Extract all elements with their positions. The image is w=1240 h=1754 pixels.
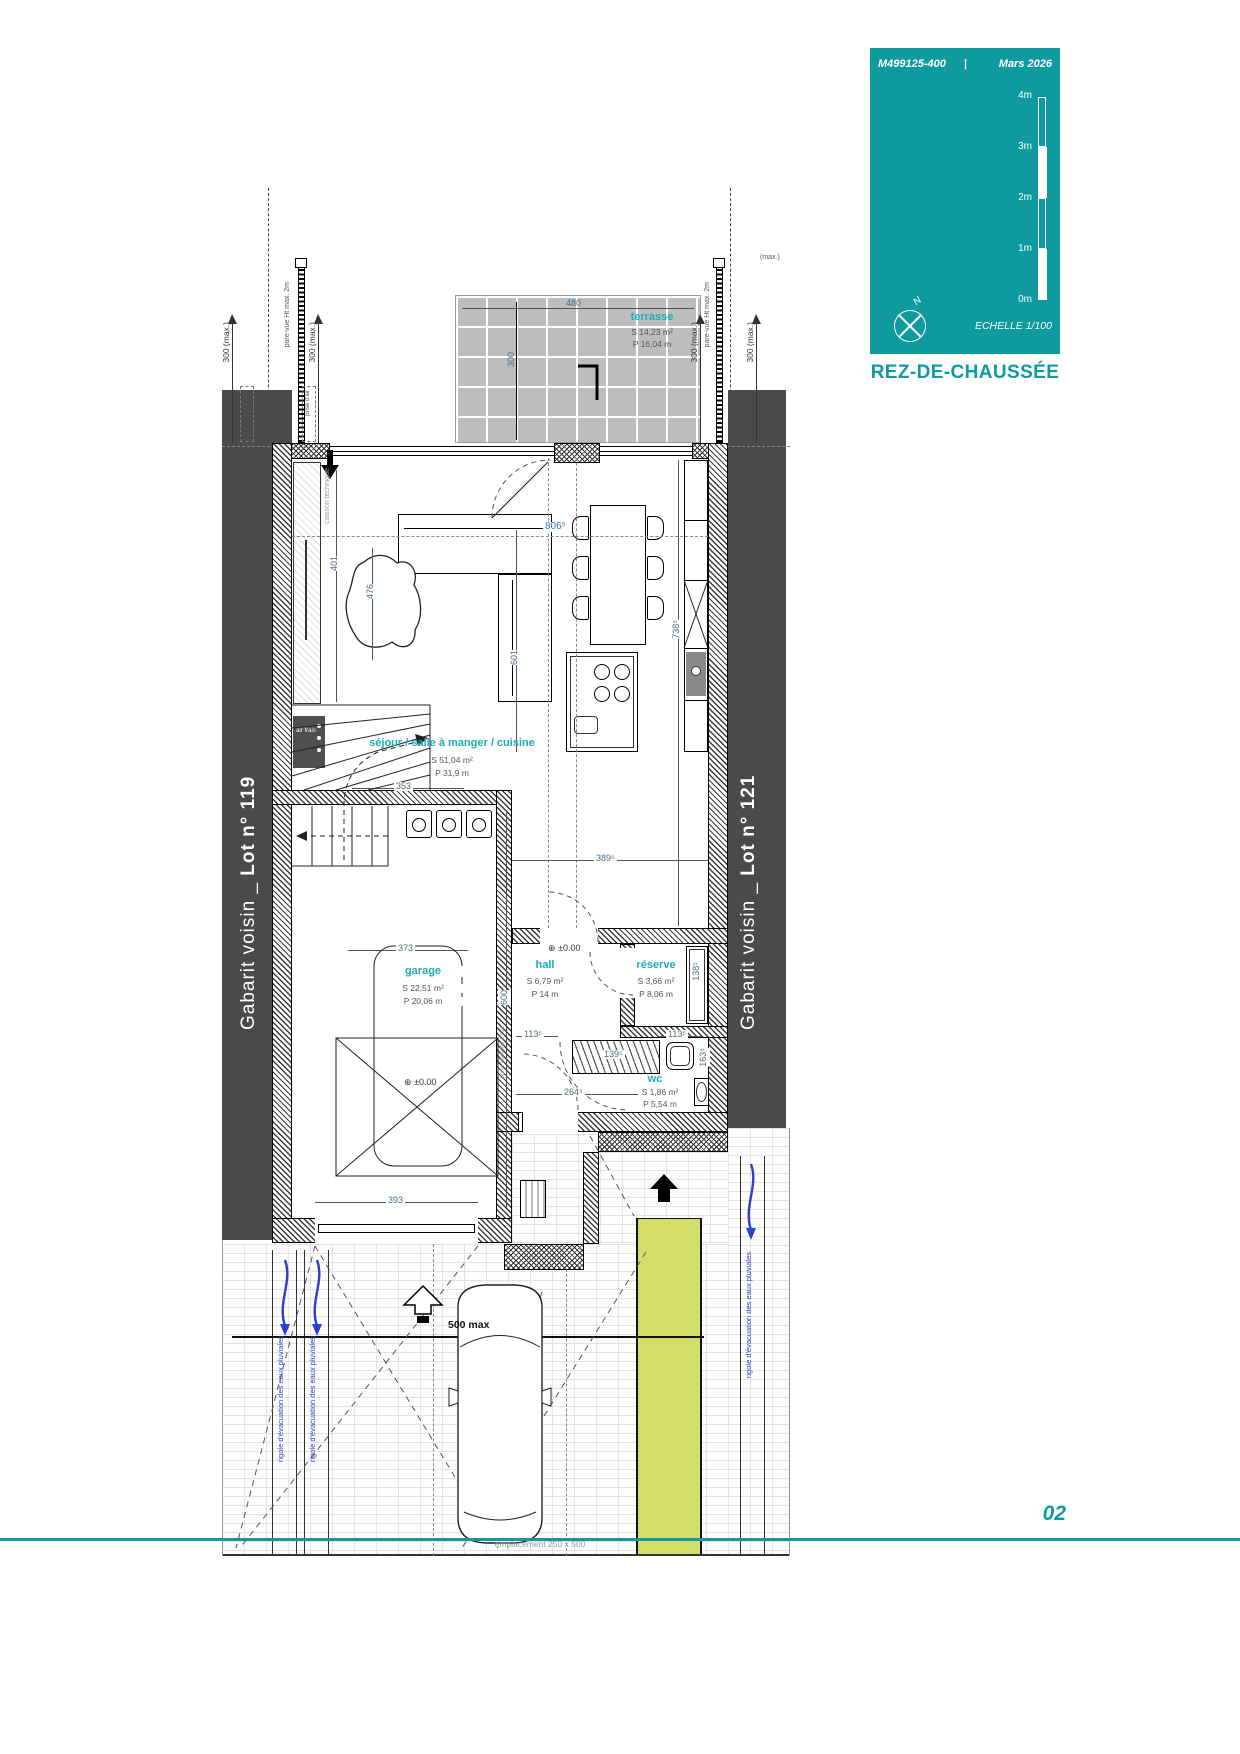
dim-label-601: 601	[508, 650, 521, 665]
room-label-reserve: réserve	[626, 960, 686, 971]
dim-label-1385: 138⁵	[690, 962, 703, 981]
room-perim-terrasse: P 16,04 m	[612, 340, 692, 349]
dim-label-600: 600	[498, 990, 511, 1005]
scale-tick-1m: 1m	[994, 243, 1032, 254]
porte-etanche-label: porte étanche à l'air	[500, 1026, 506, 1079]
dim-label-300max: 300 (max.)	[744, 322, 757, 363]
pare-vue-label-right: pare-vue Ht max. 2m	[704, 282, 711, 347]
neighbor-label-left: Gabarit voisin _ Lot n° 119	[238, 560, 278, 1030]
dim-label-8065: 806⁵	[543, 522, 568, 532]
room-area-sejour: S 51,04 m²	[347, 756, 557, 765]
scale-bar-seg	[1038, 97, 1046, 147]
scale-tick-0m: 0m	[994, 294, 1032, 305]
dim-line-476	[372, 548, 373, 660]
title-card: M499125-400 | Mars 2026 4m 3m 2m 1m 0m N…	[870, 48, 1060, 354]
dim-label-1135l: 113⁵	[522, 1030, 544, 1039]
scale-tick-4m: 4m	[994, 90, 1032, 101]
prise-air-label: prise d'air	[243, 390, 249, 416]
compass-icon: N	[888, 302, 932, 348]
scale-tick-3m: 3m	[994, 141, 1032, 152]
rigole-label: rigole d'évacuation des eaux pluviales	[308, 1336, 317, 1462]
sheet-title: REZ-DE-CHAUSSÉE	[866, 362, 1064, 384]
room-label-wc: wc	[640, 1074, 670, 1085]
room-perim-garage: P 20,06 m	[378, 997, 468, 1006]
dim-label-401: 401	[328, 556, 341, 571]
level-icon: ⊕	[548, 943, 556, 953]
room-label-garage: garage	[378, 966, 468, 977]
level-marker-garage: ⊕ ±0.00	[402, 1078, 439, 1087]
scale-bar-seg	[1038, 249, 1047, 300]
scale-bar-seg	[1038, 198, 1046, 249]
neighbor-prefix: Gabarit voisin _	[738, 876, 759, 1030]
dim-label-353: 353	[394, 782, 413, 791]
dim-label-393: 393	[386, 1196, 405, 1205]
dim-label-terr300: 300	[505, 352, 518, 367]
room-perim-wc: P 5,54 m	[630, 1100, 690, 1109]
room-perim-reserve: P 8,06 m	[622, 990, 690, 999]
room-area-terrasse: S 14,23 m²	[612, 328, 692, 337]
room-label-hall: hall	[520, 960, 570, 971]
caisson-technique-label: caisson technique	[324, 468, 331, 524]
neighbor-lot: Lot n° 121	[738, 775, 759, 876]
room-perim-sejour: P 31,9 m	[347, 769, 557, 778]
scale-tick-2m: 2m	[994, 192, 1032, 203]
rigole-label: rigole d'évacuation des eaux pluviales	[744, 1252, 753, 1378]
dim-label-300max: 300 (max.)	[306, 322, 319, 363]
level-marker-hall: ⊕ ±0.00	[546, 944, 583, 953]
neighbor-prefix: Gabarit voisin _	[238, 876, 259, 1030]
dim-label-1395: 139⁵	[602, 1050, 625, 1059]
ref-divider: |	[964, 58, 967, 70]
dim-label-1635: 163⁵	[697, 1048, 710, 1067]
pare-vue-label-left: pare-vue Ht max. 2m	[284, 282, 291, 347]
room-area-wc: S 1,86 m²	[630, 1088, 690, 1097]
dim-label-1135r: 113⁵	[666, 1030, 688, 1039]
neighbor-label-right: Gabarit voisin _ Lot n° 121	[738, 560, 778, 1030]
dim-label-500max: 500 max	[446, 1320, 491, 1331]
neighbor-lot: Lot n° 119	[238, 776, 259, 876]
page-number: 02	[1020, 1502, 1066, 1526]
dim-label-2645: 264⁵	[562, 1088, 585, 1097]
level-icon: ⊕	[404, 1077, 412, 1087]
room-area-hall: S 6,79 m²	[512, 977, 578, 986]
floor-plan-sheet: air frais	[0, 0, 1240, 1754]
north-letter: N	[911, 295, 924, 308]
room-area-reserve: S 3,66 m²	[622, 977, 690, 986]
prise-air-label: prise d'air	[305, 390, 311, 416]
room-label-terrasse: terrasse	[612, 312, 692, 323]
issue-date: Mars 2026	[988, 58, 1052, 70]
rigole-label: rigole d'évacuation des eaux pluviales	[276, 1336, 285, 1462]
dim-label-300max: 300 (max.)	[220, 322, 233, 363]
dim-label-480: 480	[564, 299, 583, 308]
max-fragment: (max.)	[760, 254, 780, 261]
dim-label-3895: 389⁵	[594, 854, 617, 863]
dim-label-7385: 738⁵	[670, 620, 683, 639]
emplacement-label: emplacement 250 x 500	[470, 1540, 610, 1549]
dim-label-373: 373	[396, 944, 415, 953]
scale-text: ECHELLE 1/100	[948, 320, 1052, 332]
scale-bar-seg	[1038, 147, 1047, 198]
footer-rule	[0, 1538, 1240, 1541]
room-label-sejour: séjour / salle à manger / cuisine	[347, 738, 557, 749]
room-area-garage: S 22,51 m²	[378, 984, 468, 993]
dim-label-476: 476	[364, 584, 377, 599]
project-ref: M499125-400	[878, 58, 946, 70]
room-perim-hall: P 14 m	[512, 990, 578, 999]
